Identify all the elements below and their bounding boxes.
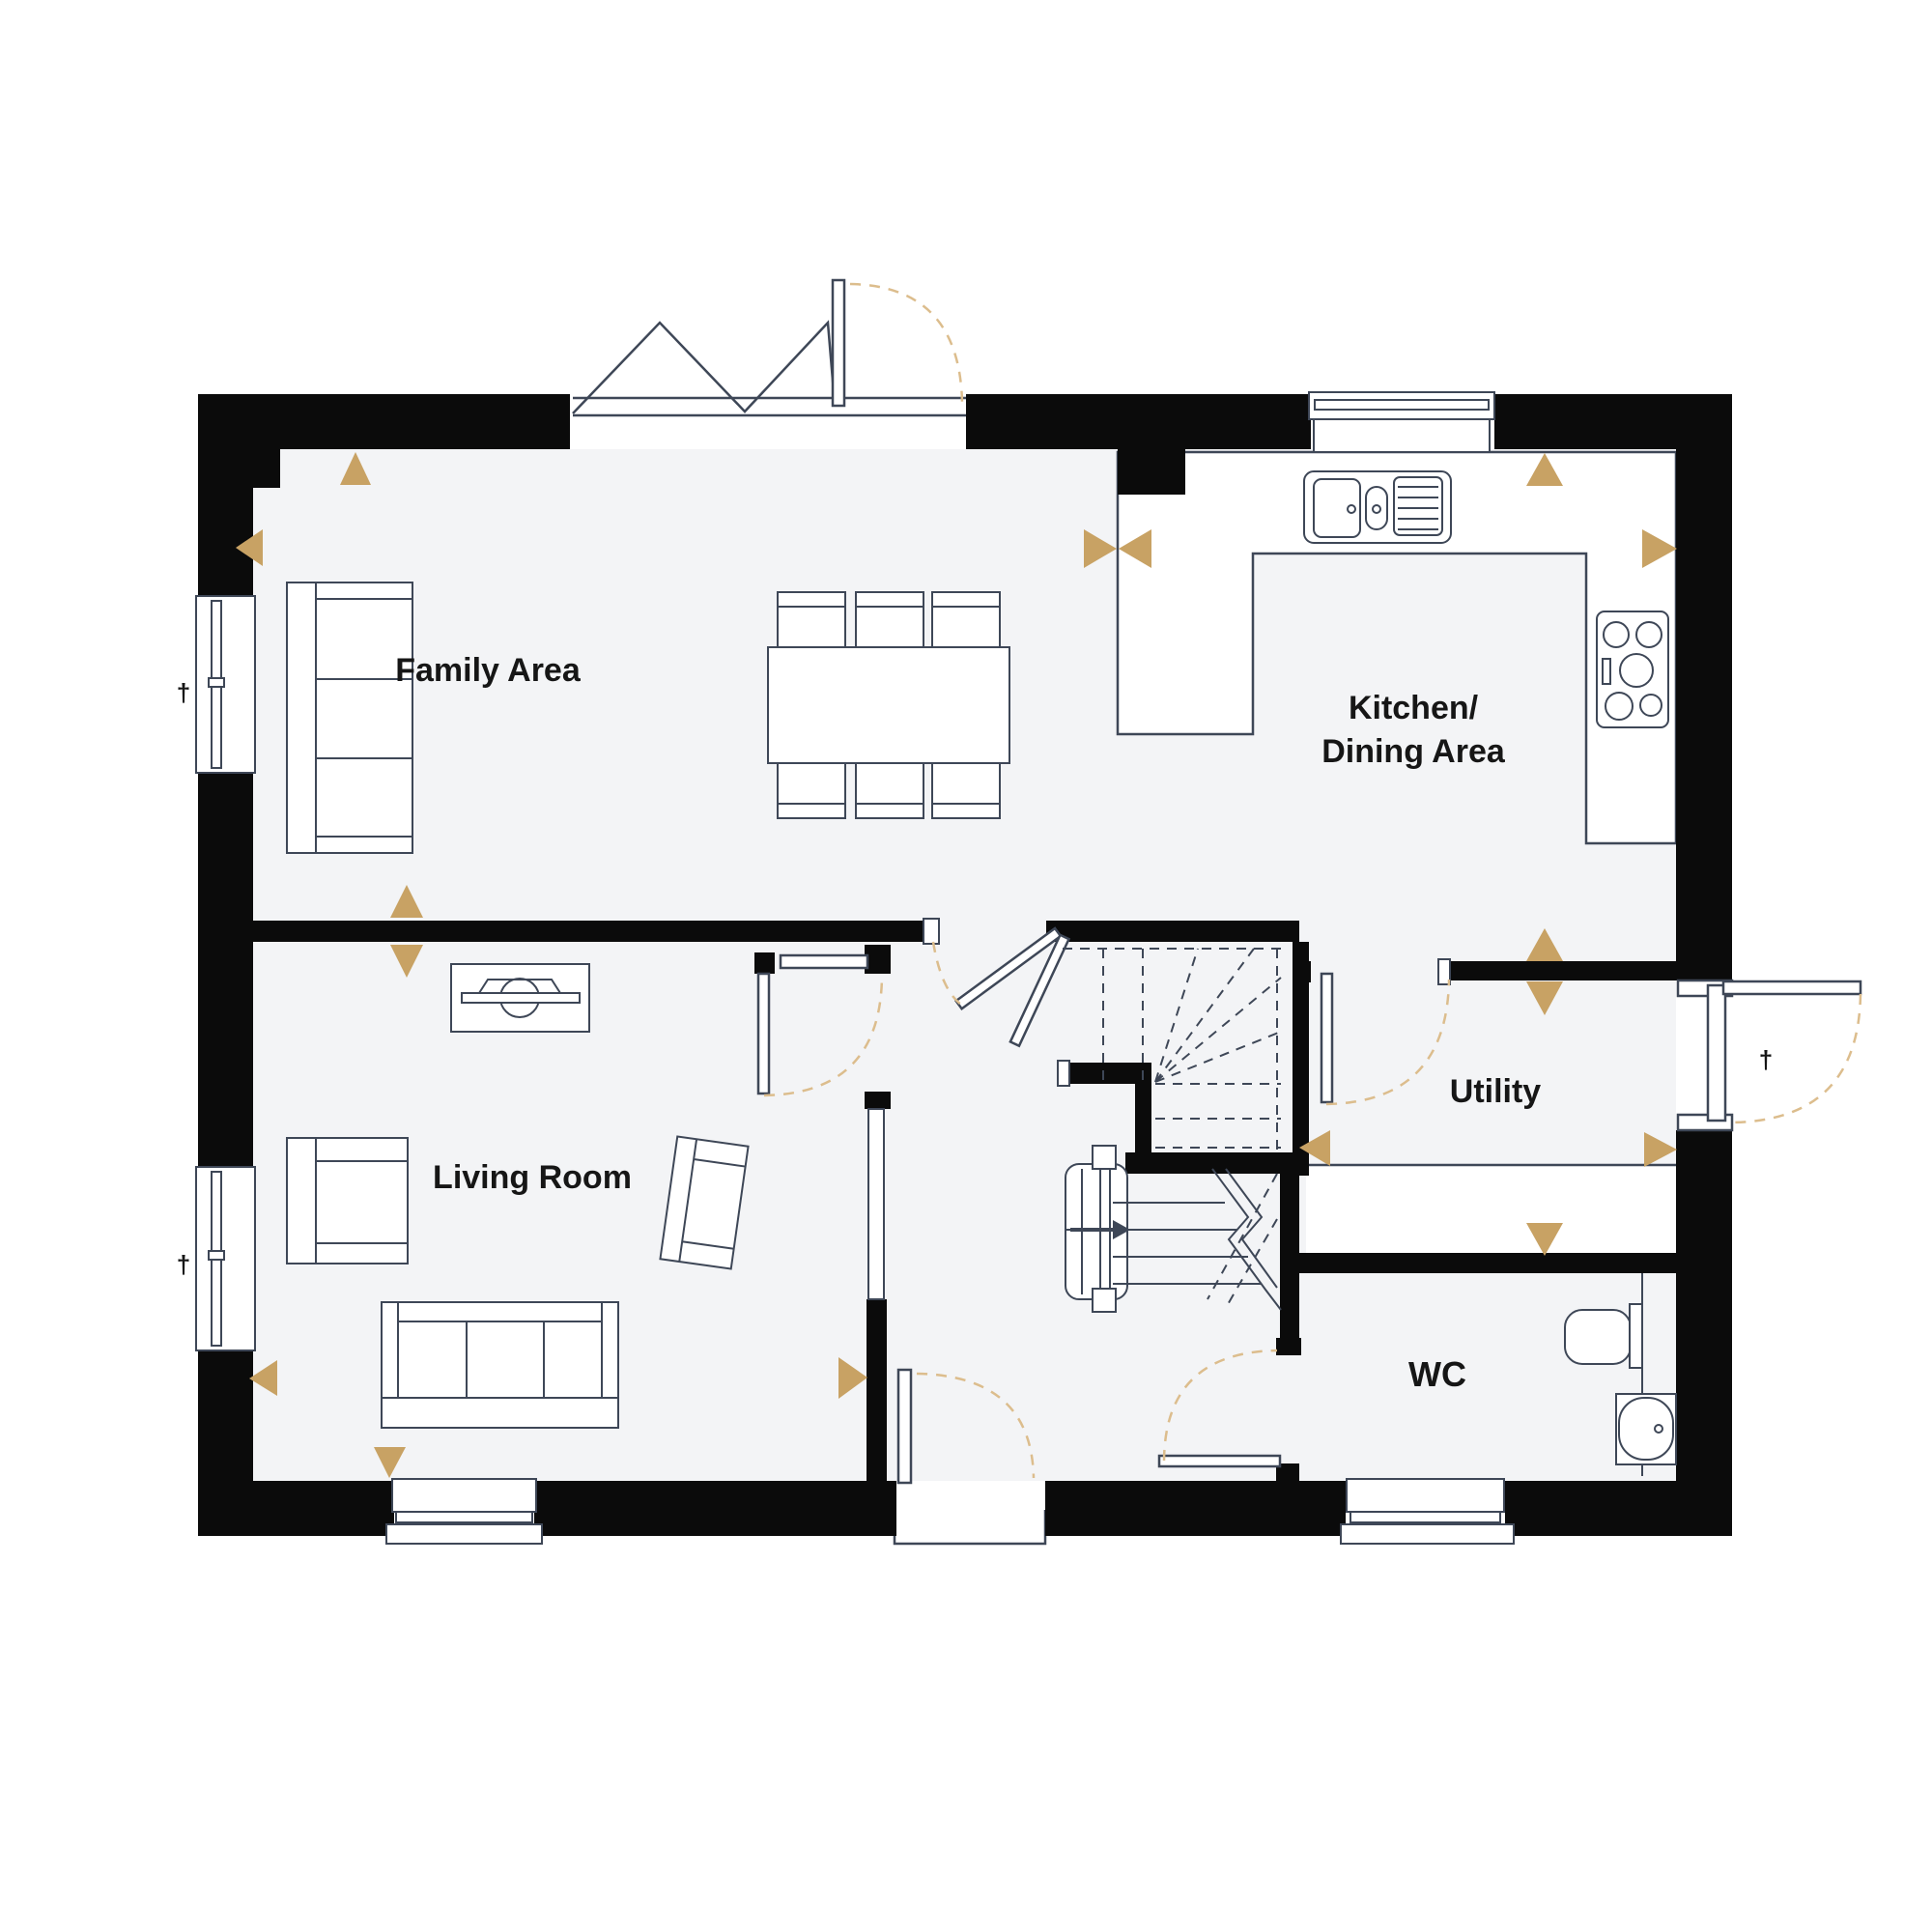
wall-hall-stairs bbox=[1046, 921, 1299, 942]
hob-icon bbox=[1597, 611, 1668, 727]
dining-chair-icon bbox=[932, 763, 1000, 818]
hall-west-screen bbox=[868, 1109, 884, 1299]
stair-newel-bottom bbox=[1093, 1289, 1116, 1312]
hall-west-post-mid bbox=[865, 1092, 891, 1109]
room-label-living: Living Room bbox=[433, 1159, 632, 1196]
wall-right-lower bbox=[1676, 1128, 1732, 1536]
sofa-icon bbox=[382, 1302, 618, 1428]
living-door-hinge-post bbox=[754, 952, 775, 974]
front-door-opening bbox=[896, 1481, 1045, 1510]
armchair-icon bbox=[287, 1138, 408, 1264]
floor-plan-canvas: Family Area Kitchen/ Dining Area Living … bbox=[0, 0, 1932, 1932]
wall-bottom-b bbox=[534, 1481, 896, 1536]
room-label-kitchen-line1: Kitchen/ bbox=[1349, 690, 1479, 726]
basin-icon bbox=[1616, 1394, 1676, 1464]
wc-door-post-top bbox=[1276, 1338, 1301, 1355]
wall-cap-family-opening bbox=[923, 919, 939, 944]
floor-plan: Family Area Kitchen/ Dining Area Living … bbox=[0, 0, 1932, 1932]
room-label-family: Family Area bbox=[395, 652, 582, 689]
back-door-frame bbox=[1708, 985, 1725, 1121]
utility-counter bbox=[1306, 1165, 1676, 1253]
stair-newel-top bbox=[1093, 1146, 1116, 1169]
back-door-leaf bbox=[1723, 981, 1861, 994]
wall-stairs-bottom bbox=[1125, 1152, 1309, 1174]
kitchen-sink-icon bbox=[1304, 471, 1451, 543]
wall-top-mid bbox=[966, 394, 1311, 449]
wall-hall-west-lower bbox=[867, 1299, 887, 1481]
radiator-icon bbox=[781, 955, 867, 968]
bifold-door bbox=[570, 280, 966, 449]
tv-unit-icon bbox=[451, 964, 589, 1032]
window-left-living bbox=[196, 1167, 255, 1350]
wall-bottom-a bbox=[198, 1481, 394, 1536]
bifold-opening bbox=[570, 394, 966, 449]
dining-chair-icon bbox=[856, 763, 923, 818]
window-left-family bbox=[196, 596, 255, 773]
window-bottom-living bbox=[386, 1479, 542, 1544]
utility-door-leaf bbox=[1321, 974, 1332, 1102]
wall-bottom-d bbox=[1505, 1481, 1732, 1536]
dining-chair-icon bbox=[932, 592, 1000, 647]
window-kitchen bbox=[1309, 392, 1494, 452]
wall-utility-top bbox=[1444, 961, 1683, 980]
wall-family-living bbox=[253, 921, 925, 942]
dining-chair-icon bbox=[856, 592, 923, 647]
room-label-wc: WC bbox=[1408, 1354, 1466, 1394]
bifold-swing-arc bbox=[850, 284, 962, 404]
toilet-icon bbox=[1565, 1304, 1642, 1368]
wall-hall-east-lower bbox=[1280, 1174, 1299, 1338]
front-door-leaf bbox=[898, 1370, 911, 1483]
wall-left-upper bbox=[198, 394, 253, 596]
window-tick: † bbox=[177, 1250, 190, 1279]
living-room-door-leaf bbox=[758, 974, 769, 1094]
dining-chair-icon bbox=[778, 592, 845, 647]
dining-chair-icon bbox=[778, 763, 845, 818]
wall-top-left bbox=[198, 394, 570, 449]
wall-wc-top bbox=[1299, 1253, 1683, 1273]
sofa-icon bbox=[287, 582, 412, 853]
wc-door-leaf bbox=[1159, 1456, 1280, 1466]
kitchen-pillar bbox=[1118, 449, 1185, 495]
room-label-utility: Utility bbox=[1450, 1073, 1542, 1110]
window-tick: † bbox=[1759, 1045, 1773, 1074]
wall-utility-join bbox=[1299, 961, 1311, 982]
wall-cap-stairs bbox=[1058, 1061, 1069, 1086]
window-tick: † bbox=[177, 678, 190, 707]
dining-table-icon bbox=[768, 592, 1009, 818]
window-bottom-wc bbox=[1341, 1479, 1514, 1544]
wall-left-mid bbox=[198, 773, 253, 1167]
bifold-swing-leaf bbox=[833, 280, 844, 406]
wall-bottom-c bbox=[1045, 1481, 1346, 1536]
room-label-kitchen-line2: Dining Area bbox=[1321, 733, 1506, 770]
wall-right-upper bbox=[1676, 394, 1732, 982]
back-door-arc bbox=[1732, 994, 1861, 1122]
porch-step bbox=[895, 1507, 1045, 1544]
